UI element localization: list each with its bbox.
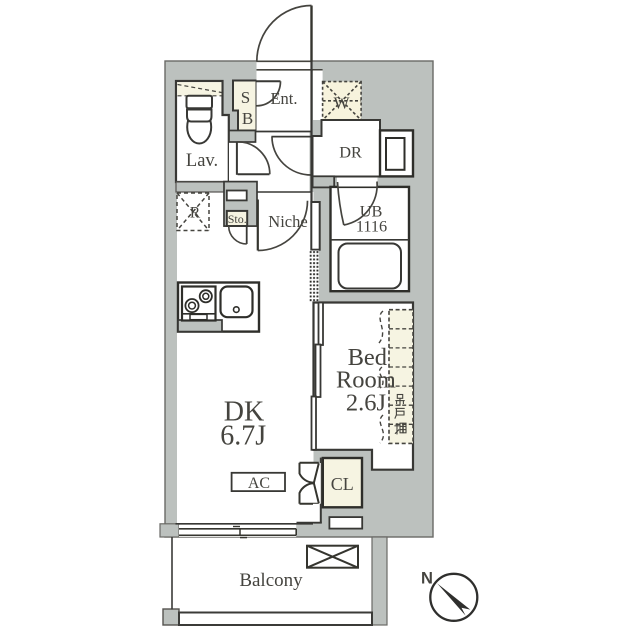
svg-text:Sto.: Sto. — [228, 212, 247, 226]
svg-text:DR: DR — [339, 143, 362, 162]
svg-text:B: B — [242, 109, 253, 128]
svg-text:W: W — [333, 94, 350, 113]
svg-text:R: R — [190, 205, 201, 222]
svg-text:2.6J: 2.6J — [346, 390, 387, 417]
svg-text:6.7J: 6.7J — [220, 421, 266, 452]
svg-text:1116: 1116 — [356, 217, 387, 236]
svg-text:N: N — [421, 570, 433, 588]
svg-text:Niche: Niche — [268, 212, 307, 231]
svg-text:S: S — [241, 88, 250, 107]
svg-text:AC: AC — [248, 475, 270, 492]
svg-text:Balcony: Balcony — [239, 570, 303, 591]
svg-text:Lav.: Lav. — [186, 151, 218, 171]
svg-text:CL: CL — [331, 474, 354, 494]
